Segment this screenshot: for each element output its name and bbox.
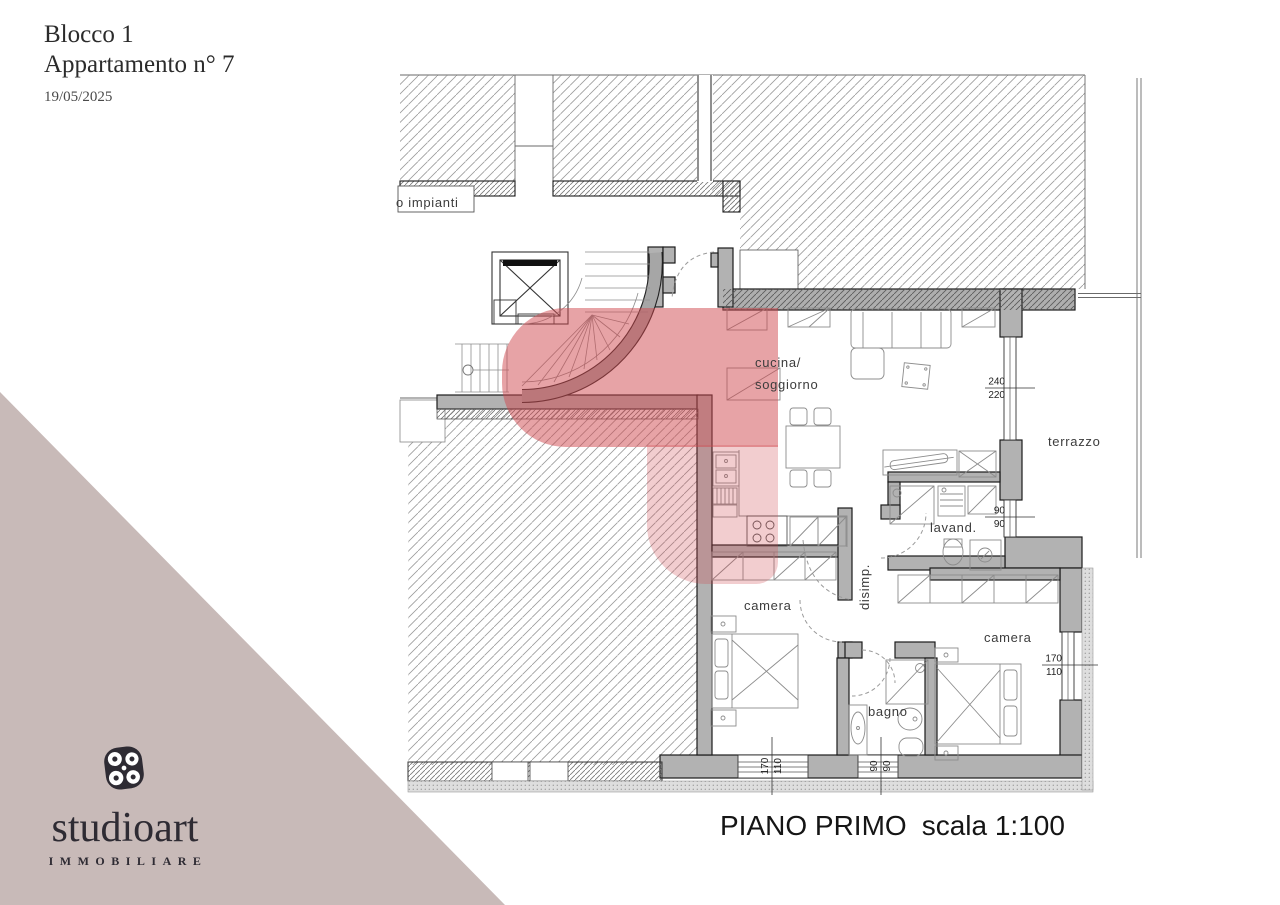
room-label-disimpegno: disimp. (857, 564, 872, 610)
room-label-cucina-2: soggiorno (755, 377, 818, 392)
dining-table (786, 408, 840, 487)
room-label-bagno: bagno (868, 704, 908, 719)
room-label-impianti: o impianti (396, 195, 459, 210)
room-label-terrazzo: terrazzo (1048, 434, 1101, 449)
block-title: Blocco 1 (44, 20, 235, 50)
dim-lavand-a: 90 (994, 506, 1006, 517)
room-label-camera1: camera (744, 598, 792, 613)
dim-camera1-b: 110 (773, 758, 784, 774)
brand-name: studioart (0, 808, 250, 848)
side-table (902, 363, 930, 390)
highlight-stair-band (502, 308, 778, 447)
plan-title: PIANO PRIMOscala 1:100 (720, 810, 1065, 842)
dim-camera1-a: 170 (760, 757, 771, 774)
dim-terrace-a: 240 (988, 377, 1005, 388)
highlight-kitchen-column (647, 445, 778, 584)
hatch-block-topmid (553, 75, 697, 181)
document-date: 19/05/2025 (44, 89, 235, 106)
dim-bagno-a: 90 (869, 760, 880, 772)
plan-title-scale: scala 1:100 (922, 810, 1065, 841)
plan-title-main: PIANO PRIMO (720, 810, 907, 841)
dim-camera2-b: 110 (1046, 667, 1062, 678)
studioart-logo-icon (99, 742, 149, 794)
dim-terrace-b: 220 (988, 390, 1005, 401)
brand-logo: studioart IMMOBILIARE (0, 742, 250, 869)
document-header: Blocco 1 Appartamento n° 7 19/05/2025 (44, 20, 235, 106)
apartment-title: Appartamento n° 7 (44, 50, 235, 80)
room-label-lavanderia: lavand. (930, 520, 977, 535)
bed-camera1 (711, 616, 798, 726)
sofa (851, 309, 951, 348)
hatch-block-topleft (400, 75, 515, 181)
dim-bagno-b: 90 (882, 760, 893, 772)
room-label-cucina-1: cucina/ (755, 355, 801, 370)
brand-tagline: IMMOBILIARE (0, 854, 250, 869)
dim-camera2-a: 170 (1045, 654, 1062, 665)
dim-lavand-b: 90 (994, 519, 1006, 530)
bed-camera2 (935, 648, 1021, 760)
brochure-page: o impianti cucina/ soggiorno terrazzo la… (0, 0, 1280, 905)
room-label-camera2: camera (984, 630, 1032, 645)
floor-plan: o impianti cucina/ soggiorno terrazzo la… (396, 75, 1141, 795)
